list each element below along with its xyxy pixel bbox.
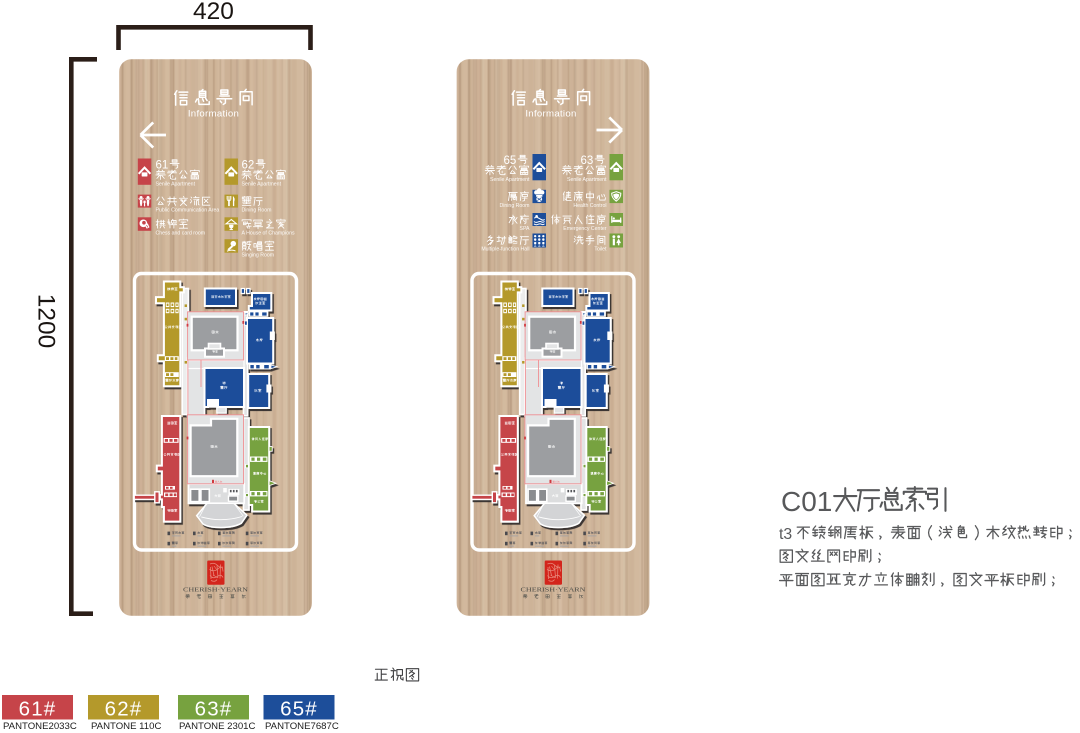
svg-text:65: 65 <box>504 155 517 167</box>
svg-text:1200: 1200 <box>33 294 60 349</box>
svg-text:A House of Champions: A House of Champions <box>242 230 295 236</box>
svg-text:63: 63 <box>581 155 594 167</box>
svg-text:PANTONE2033C: PANTONE2033C <box>3 721 77 732</box>
svg-text:Senile Apartment: Senile Apartment <box>567 177 607 183</box>
svg-text:Dining Room: Dining Room <box>500 203 530 209</box>
svg-text:Senile Apartment: Senile Apartment <box>242 181 282 187</box>
svg-text:Chess and card room: Chess and card room <box>156 230 206 236</box>
svg-text:63#: 63# <box>195 697 233 720</box>
svg-text:Dining Room: Dining Room <box>242 208 272 214</box>
svg-text:C01: C01 <box>781 486 832 517</box>
svg-text:Health Control: Health Control <box>573 203 606 209</box>
svg-text:PANTONE 2301C: PANTONE 2301C <box>179 721 255 732</box>
svg-text:Singing Room: Singing Room <box>242 252 275 258</box>
svg-text:61#: 61# <box>19 697 57 720</box>
svg-text:65#: 65# <box>280 697 318 720</box>
svg-text:62#: 62# <box>105 697 143 720</box>
svg-text:t3: t3 <box>779 526 792 543</box>
svg-text:PANTONE7687C: PANTONE7687C <box>265 721 339 732</box>
svg-text:Senile Apartment: Senile Apartment <box>490 177 530 183</box>
svg-text:420: 420 <box>193 0 234 25</box>
svg-text:Multiple-function Hall: Multiple-function Hall <box>481 247 529 253</box>
svg-text:Toilet: Toilet <box>594 247 607 253</box>
svg-text:SPA: SPA <box>520 226 531 232</box>
svg-text:Public Communication Area: Public Communication Area <box>156 208 220 214</box>
svg-text:PANTONE 110C: PANTONE 110C <box>91 721 161 732</box>
svg-text:Emergency Center: Emergency Center <box>563 226 607 232</box>
svg-text:Senile Apartment: Senile Apartment <box>156 181 196 187</box>
